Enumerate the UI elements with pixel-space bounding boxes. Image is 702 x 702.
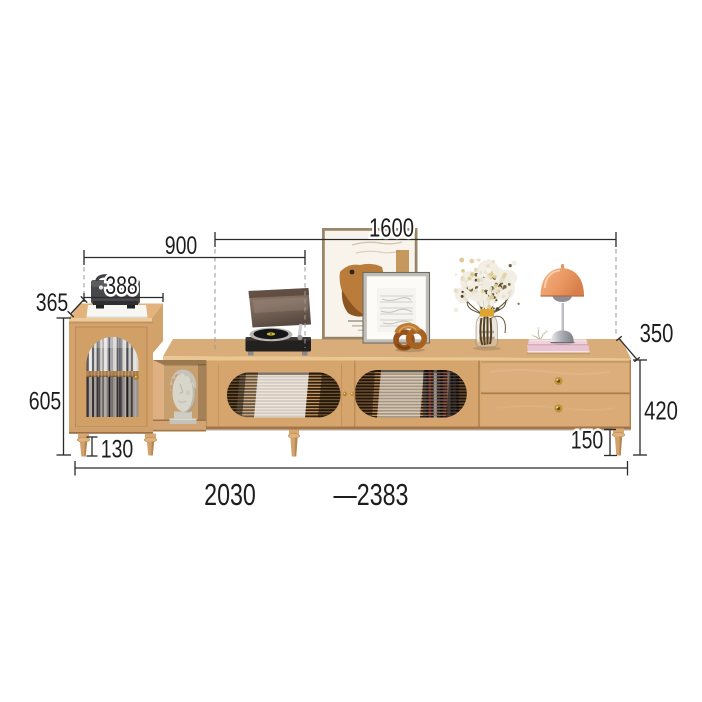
svg-text:130: 130 (101, 435, 134, 463)
svg-text:1600: 1600 (369, 213, 414, 242)
svg-text:365: 365 (36, 289, 69, 317)
svg-text:605: 605 (29, 387, 62, 415)
svg-text:388: 388 (105, 272, 138, 300)
svg-text:—2383: —2383 (334, 477, 409, 512)
svg-text:900: 900 (165, 232, 198, 260)
svg-text:420: 420 (644, 396, 678, 425)
svg-text:2030: 2030 (204, 477, 256, 512)
svg-text:150: 150 (571, 426, 604, 454)
svg-text:350: 350 (640, 319, 674, 348)
